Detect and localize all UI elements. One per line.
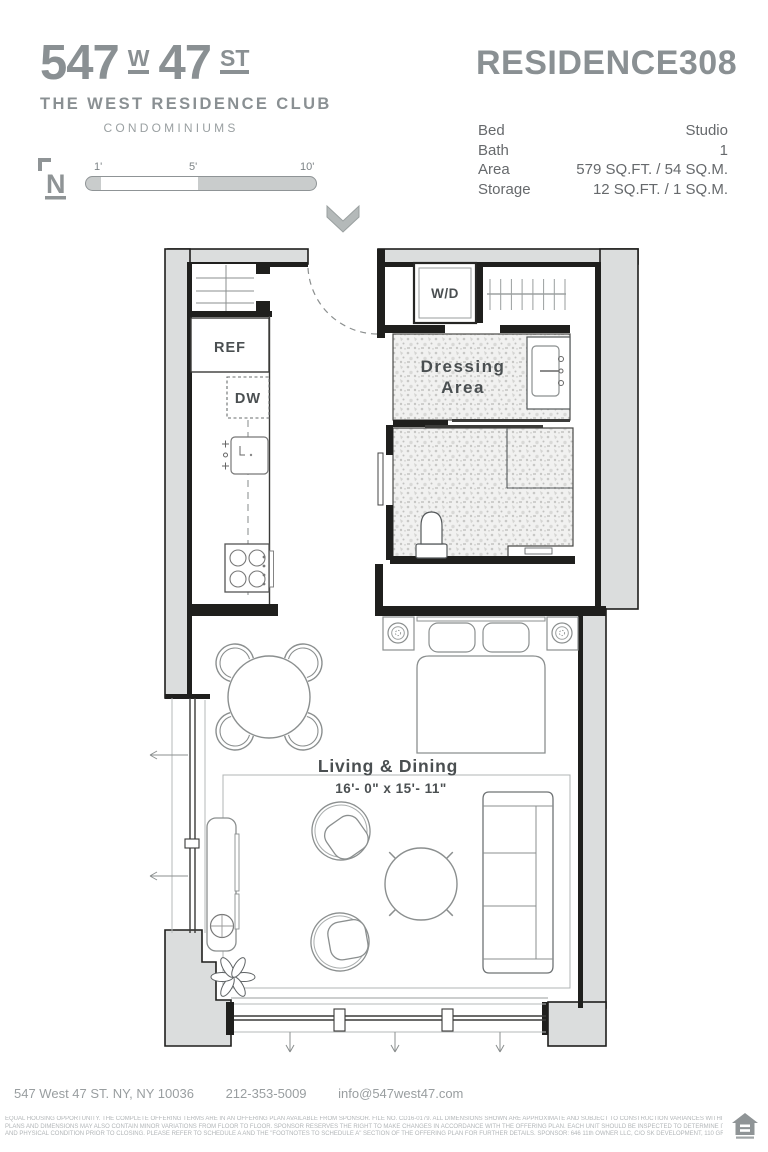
- contact-email: info@547west47.com: [338, 1086, 463, 1101]
- contact-phone: 212-353-5009: [226, 1086, 307, 1101]
- window-bottom: [231, 998, 548, 1052]
- sliding-door-track: [425, 425, 543, 428]
- label-washer-dryer: W/D: [431, 286, 459, 301]
- label-dressing-area-1: Dressing: [421, 357, 506, 376]
- floorplan-page: 547 W 47 ST THE WEST RESIDENCE CLUB COND…: [0, 0, 768, 1152]
- equal-housing-icon: [731, 1111, 759, 1141]
- sofa: [483, 792, 553, 973]
- lounge-chair: [301, 791, 385, 874]
- window-left: [150, 698, 205, 933]
- media-console: [207, 818, 239, 951]
- bed: [417, 617, 545, 753]
- contact-line: 547 West 47 ST. NY, NY 10036 212-353-500…: [14, 1086, 491, 1101]
- bathroom-floor: [393, 428, 573, 558]
- label-living-dining: Living & Dining: [318, 756, 458, 776]
- dining-set: [208, 636, 330, 758]
- label-refrigerator: REF: [214, 340, 246, 356]
- nightstand-right: [547, 617, 578, 650]
- legal-line-1: EQUAL HOUSING OPPORTUNITY. THE COMPLETE …: [5, 1116, 723, 1124]
- legal-line-3: AND PHYSICAL CONDITION PRIOR TO CLOSING.…: [5, 1131, 723, 1139]
- plant: [211, 956, 255, 999]
- pillow: [429, 623, 475, 652]
- entry-arrow-icon: [327, 206, 359, 232]
- label-living-dims: 16'- 0" x 15'- 11": [335, 781, 447, 796]
- shower-drain: [525, 548, 552, 554]
- label-dishwasher: DW: [235, 391, 261, 407]
- kitchen: [191, 316, 274, 604]
- entry-closet: [192, 264, 256, 311]
- kitchen-sink: [222, 437, 268, 474]
- bathroom-door: [378, 453, 383, 505]
- entry-door-swing: [308, 268, 378, 334]
- legal-line-2: PLANS AND DIMENSIONS MAY ALSO CONTAIN MI…: [5, 1124, 723, 1132]
- vanity-sink: [527, 337, 570, 409]
- nightstand-left: [383, 617, 414, 650]
- dining-table: [228, 656, 310, 738]
- sliding-door-track: [452, 419, 570, 422]
- contact-address: 547 West 47 ST. NY, NY 10036: [14, 1086, 194, 1101]
- closet-rod: [487, 279, 566, 310]
- floor-plan: REF DW W/D Dressing Area Living & Dining…: [0, 0, 768, 1152]
- stove: [225, 544, 274, 592]
- legal-disclaimer: EQUAL HOUSING OPPORTUNITY. THE COMPLETE …: [5, 1116, 723, 1139]
- pillow: [483, 623, 529, 652]
- coffee-table: [385, 848, 457, 920]
- lounge-chair: [300, 901, 382, 982]
- label-dressing-area-2: Area: [441, 378, 485, 397]
